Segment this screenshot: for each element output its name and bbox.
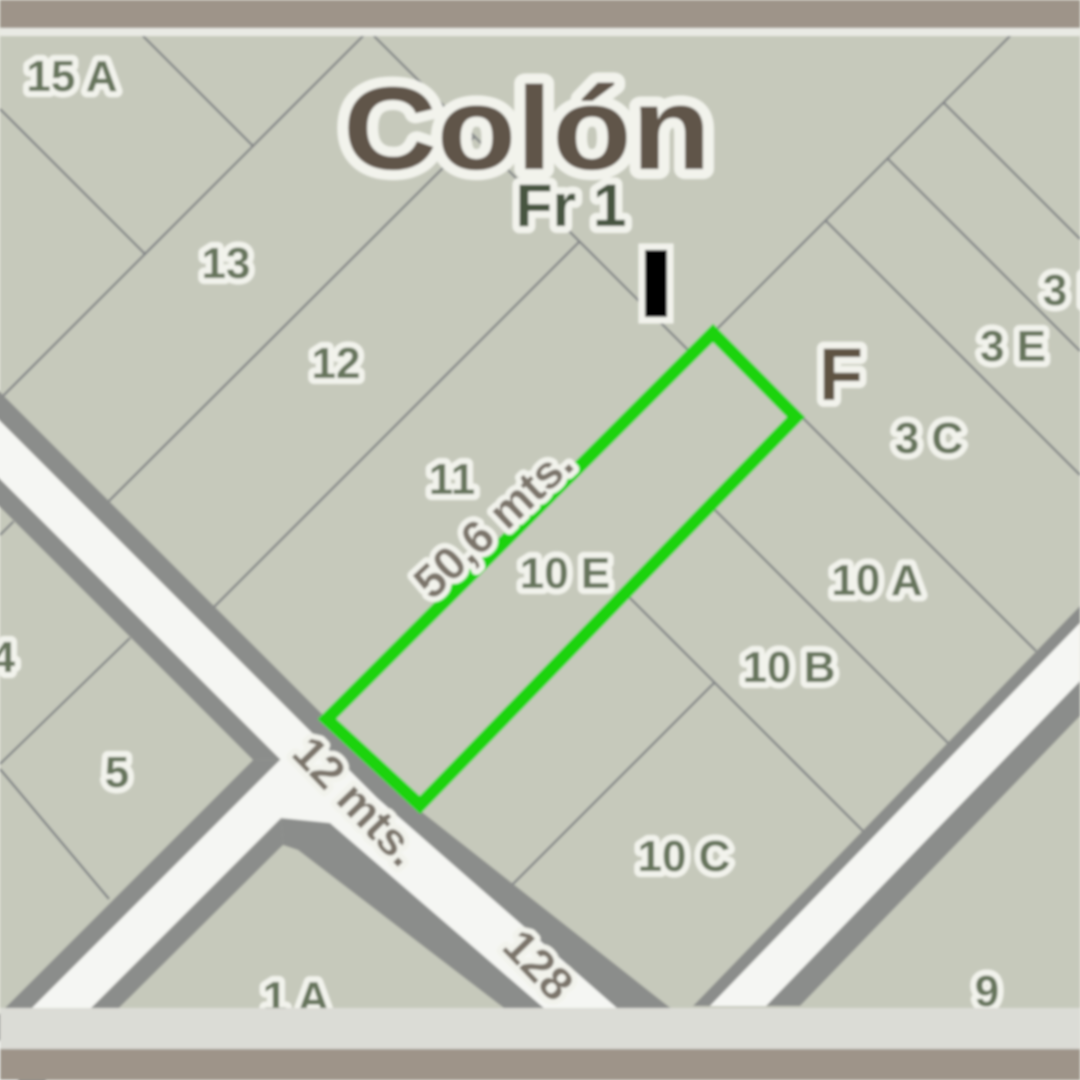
- svg-text:5: 5: [105, 748, 129, 797]
- svg-text:F: F: [819, 333, 863, 416]
- svg-text:3 E: 3 E: [980, 322, 1046, 371]
- svg-text:10 A: 10 A: [831, 556, 922, 605]
- svg-text:Fr 1: Fr 1: [516, 172, 627, 239]
- svg-text:3 B: 3 B: [1043, 266, 1080, 315]
- svg-text:11: 11: [429, 455, 476, 504]
- svg-text:15 A: 15 A: [26, 52, 117, 101]
- svg-text:3 C: 3 C: [895, 414, 963, 463]
- svg-text:10 C: 10 C: [638, 832, 731, 881]
- svg-text:10 B: 10 B: [743, 643, 836, 692]
- svg-text:12: 12: [312, 339, 361, 388]
- svg-text:13: 13: [202, 239, 251, 288]
- svg-text:4: 4: [0, 633, 16, 682]
- svg-text:10 E: 10 E: [520, 549, 611, 598]
